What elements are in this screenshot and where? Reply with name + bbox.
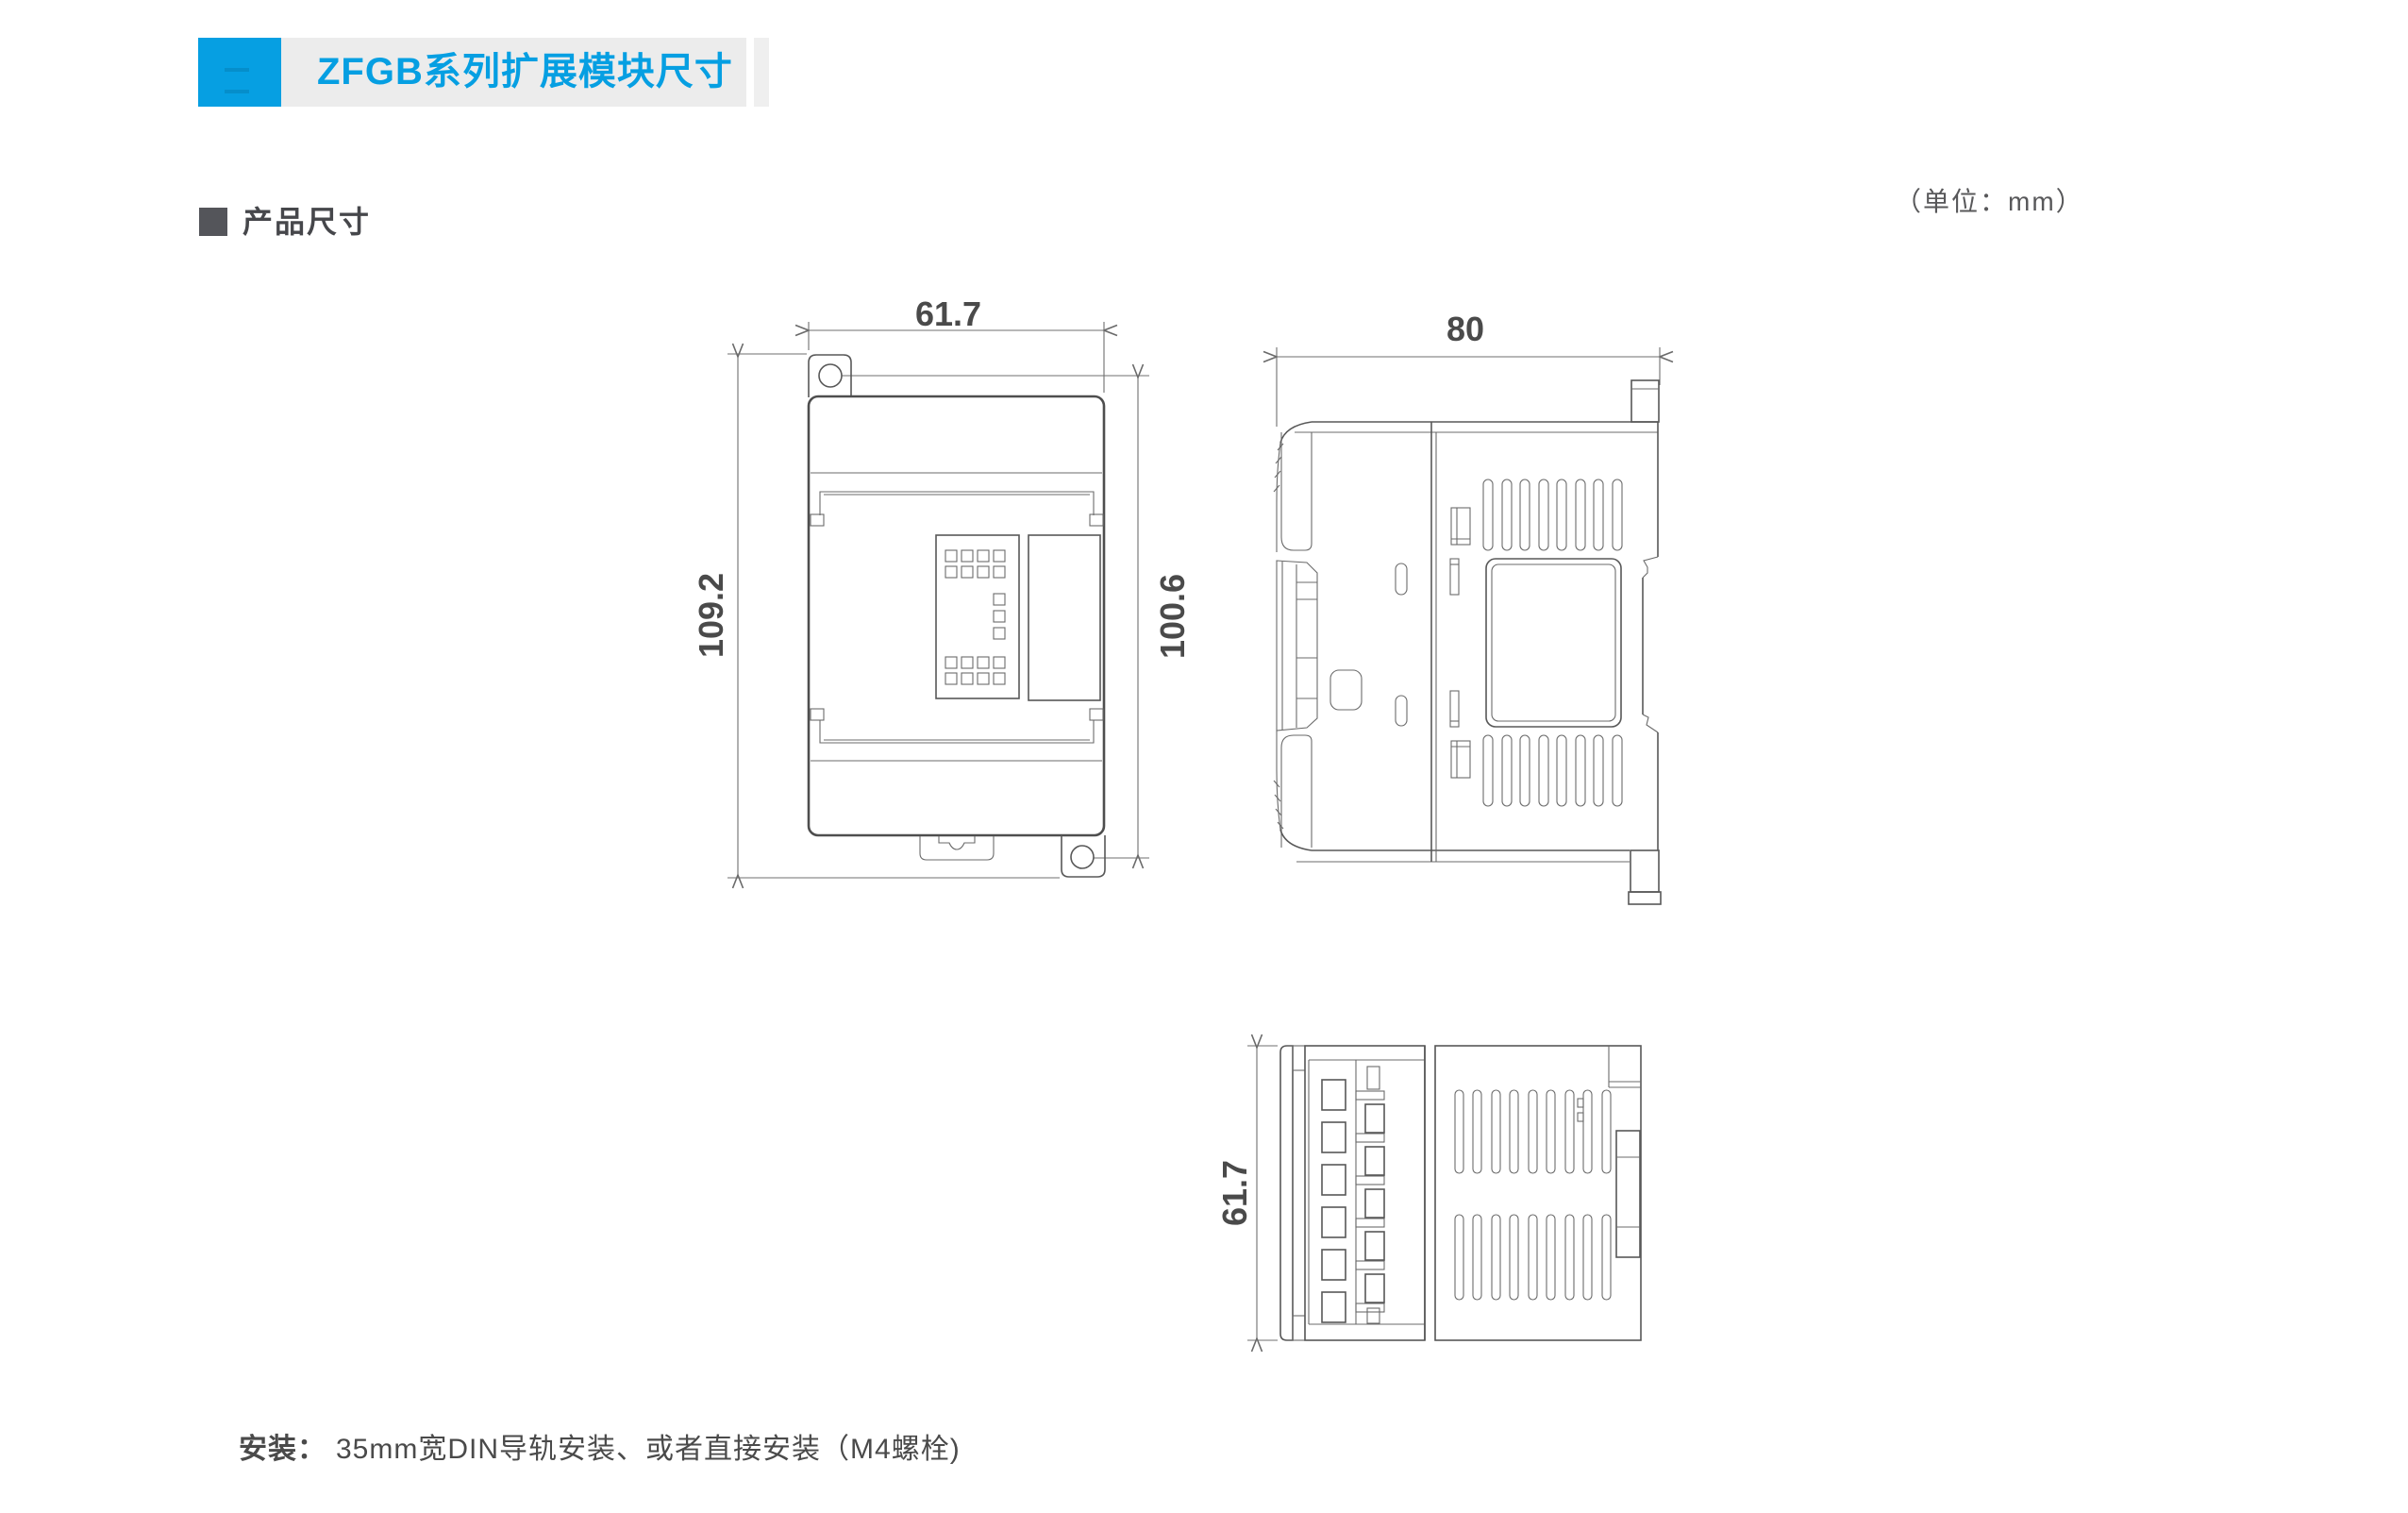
side-view-drawing: 80	[1274, 310, 1661, 904]
din-rail-tab-top-view	[1616, 1131, 1640, 1257]
side-vent-slots-bottom	[1483, 735, 1622, 806]
clip-release-button	[1330, 670, 1362, 710]
rear-panel-square	[1486, 559, 1621, 727]
top-vent-slots-upper	[1455, 1090, 1611, 1173]
mounting-hole-top	[819, 364, 842, 387]
led-indicator-squares	[945, 550, 1005, 684]
terminal-cells-left	[1322, 1080, 1346, 1322]
din-tab-top	[1631, 380, 1659, 422]
label-area	[1028, 535, 1100, 700]
top-view-drawing: 61.7	[1215, 1046, 1641, 1340]
dimension-label-front-total-height: 109.2	[692, 573, 730, 658]
mounting-note-text: 35mm宽DIN导轨安装、或者直接安装（M4螺栓)	[336, 1434, 961, 1465]
mounting-hole-bottom	[1071, 846, 1094, 868]
dimension-label-front-width: 61.7	[915, 294, 981, 333]
dimension-label-top-width: 61.7	[1215, 1160, 1254, 1226]
dimension-label-front-mounting-pitch: 100.6	[1153, 574, 1192, 659]
dimension-label-side-depth: 80	[1446, 310, 1484, 348]
din-clip-front	[920, 836, 994, 860]
mounting-note-label: 安装：	[239, 1434, 326, 1465]
mounting-note: 安装：35mm宽DIN导轨安装、或者直接安装（M4螺栓)	[239, 1425, 961, 1467]
din-tab-bottom	[1630, 850, 1659, 892]
side-vent-rects	[1450, 508, 1470, 778]
top-vent-slots-lower	[1455, 1215, 1611, 1300]
side-vent-slots-top	[1483, 479, 1622, 550]
terminal-comb-teeth	[1356, 1067, 1384, 1323]
dimension-drawings-svg: 61.7 109.2 100.6	[0, 0, 2408, 1513]
front-view-drawing: 61.7 109.2 100.6	[692, 294, 1192, 878]
